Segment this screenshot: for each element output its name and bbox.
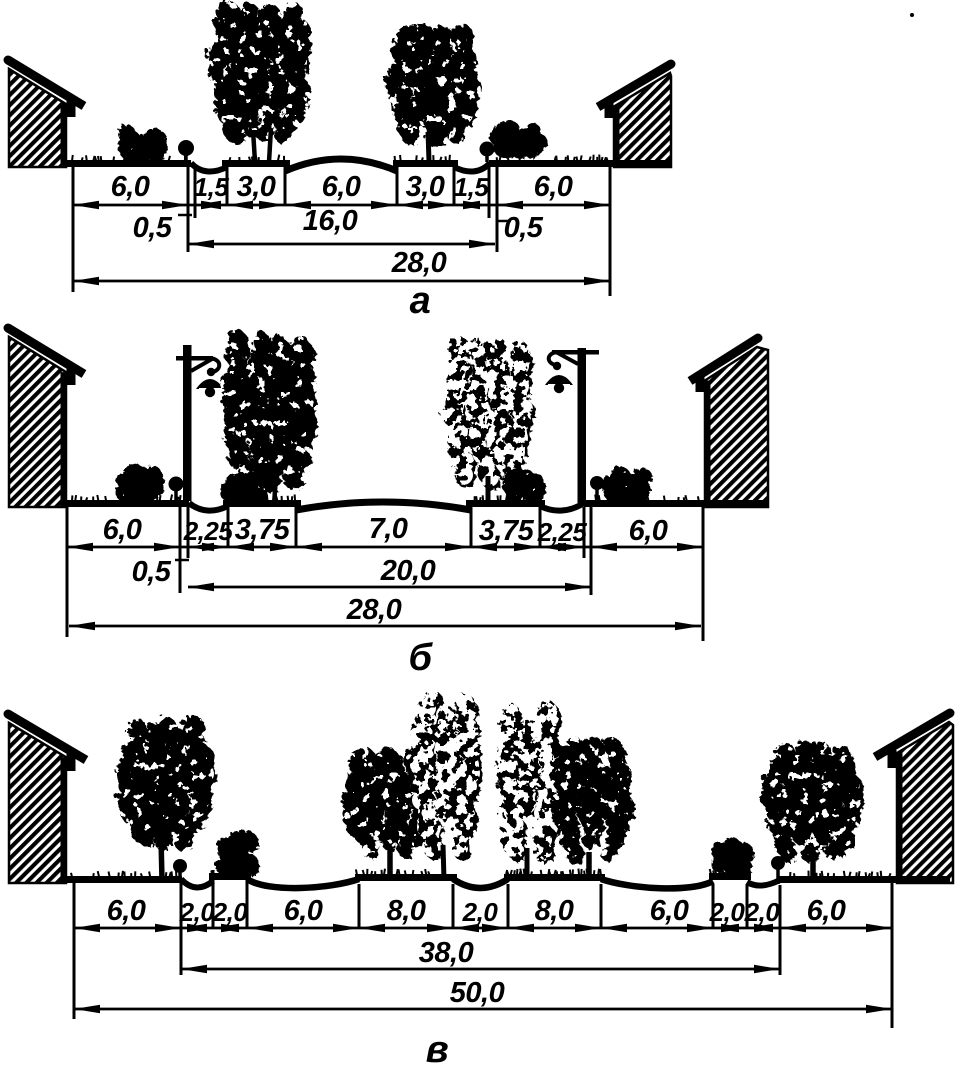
svg-text:6,0: 6,0 [322, 171, 361, 203]
svg-text:0,5: 0,5 [132, 556, 172, 588]
svg-text:6,0: 6,0 [534, 171, 573, 203]
svg-text:6,0: 6,0 [107, 895, 146, 927]
svg-text:6,0: 6,0 [284, 895, 323, 927]
svg-text:2,0: 2,0 [744, 897, 781, 927]
svg-text:1,5: 1,5 [194, 172, 230, 202]
svg-text:2,0: 2,0 [462, 897, 499, 927]
svg-text:16,0: 16,0 [303, 205, 358, 237]
svg-text:28,0: 28,0 [391, 247, 447, 279]
svg-text:0,5: 0,5 [504, 212, 544, 244]
svg-text:а: а [410, 280, 431, 322]
svg-text:8,0: 8,0 [387, 895, 426, 927]
svg-text:6,0: 6,0 [111, 171, 150, 203]
svg-text:6,0: 6,0 [807, 895, 846, 927]
svg-text:2,0: 2,0 [709, 897, 746, 927]
svg-text:6,0: 6,0 [650, 895, 689, 927]
svg-text:б: б [408, 637, 433, 679]
svg-text:0,5: 0,5 [133, 212, 173, 244]
svg-text:6,0: 6,0 [103, 514, 142, 546]
svg-text:3,0: 3,0 [406, 171, 445, 203]
svg-text:2,0: 2,0 [179, 897, 216, 927]
svg-text:2,25: 2,25 [537, 517, 588, 547]
svg-text:20,0: 20,0 [380, 555, 436, 587]
svg-text:2,25: 2,25 [183, 516, 234, 546]
svg-text:3,75: 3,75 [479, 515, 535, 547]
svg-text:3,75: 3,75 [235, 514, 291, 546]
svg-text:в: в [426, 1029, 448, 1071]
svg-text:1,5: 1,5 [454, 172, 490, 202]
svg-text:7,0: 7,0 [369, 513, 408, 545]
svg-text:8,0: 8,0 [535, 895, 574, 927]
svg-text:6,0: 6,0 [629, 515, 668, 547]
svg-text:50,0: 50,0 [450, 977, 505, 1009]
svg-text:28,0: 28,0 [346, 594, 402, 626]
svg-text:3,0: 3,0 [237, 171, 276, 203]
svg-text:38,0: 38,0 [419, 937, 474, 969]
svg-text:2,0: 2,0 [212, 897, 249, 927]
